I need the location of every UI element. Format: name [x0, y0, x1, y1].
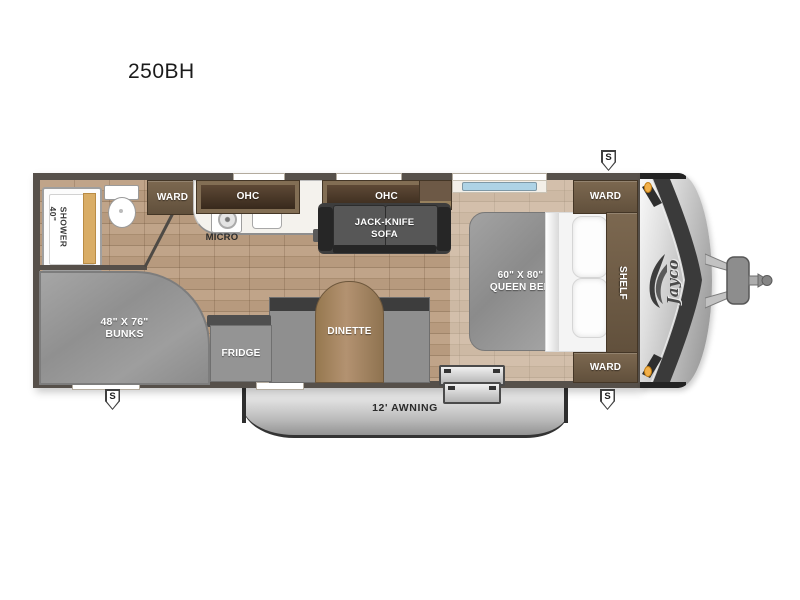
- awning-label: 12' AWNING: [242, 402, 568, 414]
- dinette-bench-back: [380, 298, 429, 311]
- clearance-light-bottom: [644, 366, 652, 377]
- dinette-bench-left: [269, 297, 320, 383]
- window-bedroom-glass: [462, 182, 537, 191]
- overhead-cabinet-kitchen: OHC: [196, 180, 300, 214]
- step-bracket: [444, 369, 451, 373]
- awning: 12' AWNING: [242, 385, 568, 438]
- wardrobe-front-top: WARD: [573, 180, 638, 214]
- fridge: FRIDGE: [210, 325, 272, 382]
- dinette-bench-back: [270, 298, 319, 311]
- step-bracket: [493, 369, 500, 373]
- wardrobe-front-bottom-label: WARD: [590, 362, 621, 374]
- ohc-living-label: OHC: [375, 191, 398, 203]
- speaker-marker-bottom-left: S: [105, 389, 120, 410]
- toilet-flush-dot: [119, 209, 123, 213]
- shelf-label: SHELF: [616, 266, 628, 300]
- ohc-kitchen-label: OHC: [237, 191, 260, 203]
- dinette-bench-right: [379, 297, 430, 383]
- jack-knife-sofa: JACK-KNIFE SOFA: [318, 203, 451, 254]
- bunks: 48" X 76" BUNKS: [39, 271, 210, 385]
- duvet-fold: [546, 213, 559, 351]
- sofa-label: JACK-KNIFE SOFA: [318, 203, 451, 254]
- pillow: [572, 216, 608, 278]
- shower-door: [83, 193, 96, 264]
- dinette-label: DINETTE: [327, 326, 371, 338]
- pillow: [572, 278, 608, 338]
- cap-edge-bottom: [640, 382, 686, 388]
- brand-logo-text: Jayco: [664, 252, 680, 312]
- dinette-table: DINETTE: [315, 281, 384, 383]
- entry-step-lower: [443, 382, 501, 404]
- clearance-light-top: [644, 182, 652, 193]
- floorplan-page: 250BH 12' AWNING 40" SHOWER WARD: [0, 0, 800, 600]
- hitch-ball: [762, 276, 772, 286]
- step-bracket: [489, 386, 496, 390]
- shower-label: 40" SHOWER: [47, 207, 68, 248]
- microwave-label: MICRO: [194, 232, 250, 243]
- page-title: 250BH: [128, 60, 195, 84]
- fridge-label: FRIDGE: [222, 348, 261, 360]
- speaker-marker-top: S: [601, 150, 616, 171]
- wardrobe-front-top-label: WARD: [590, 191, 621, 203]
- step-bracket: [448, 386, 455, 390]
- cap-edge-top: [640, 173, 686, 179]
- speaker-marker-bottom-right: S: [600, 389, 615, 410]
- hitch-assembly: [705, 240, 775, 326]
- hitch-bar: [749, 276, 758, 285]
- wardrobe-bath: WARD: [147, 180, 198, 215]
- window-bottom-dinette: [256, 382, 304, 390]
- shelf: SHELF: [606, 212, 638, 354]
- bathroom-door-swing: [140, 208, 180, 272]
- wardrobe-front-bottom: WARD: [573, 352, 638, 383]
- propane-tank: [727, 257, 749, 304]
- bathroom-wall: [39, 265, 147, 270]
- queen-bed-label: 60" X 80" QUEEN BED: [490, 270, 551, 294]
- bunks-label: 48" X 76" BUNKS: [101, 316, 149, 341]
- wardrobe-bath-label: WARD: [157, 192, 188, 204]
